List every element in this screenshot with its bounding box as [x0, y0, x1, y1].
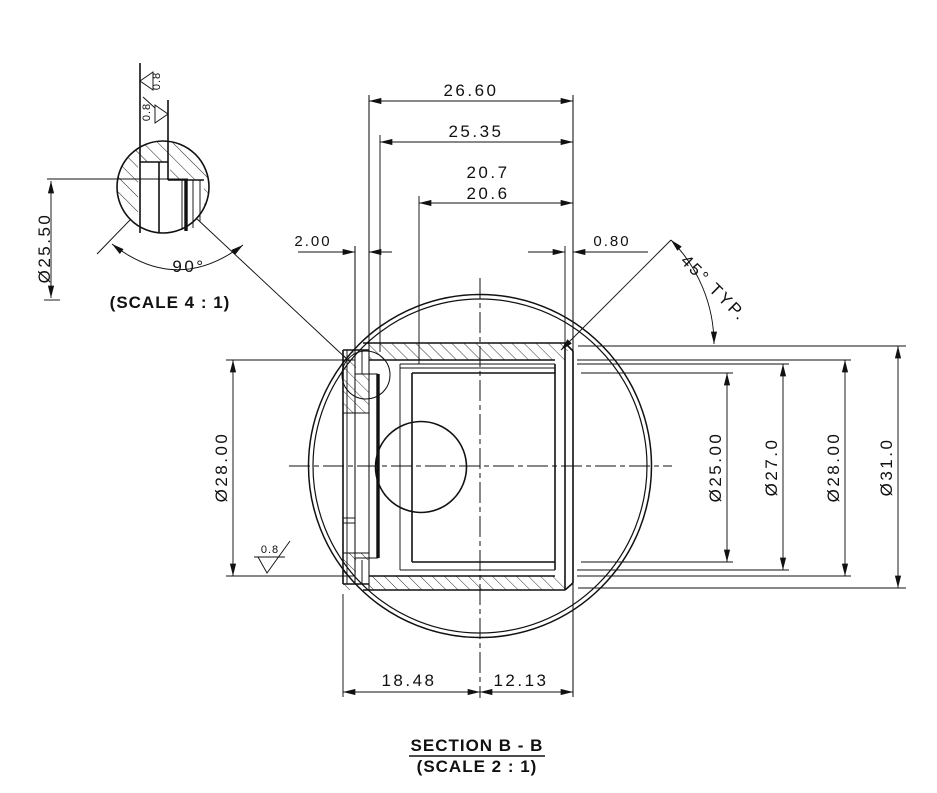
dim-chamfer-width: 0.80: [593, 233, 630, 250]
dim-dia-bore: Ø25.00: [706, 432, 725, 503]
dim-left-length: 18.48: [381, 671, 436, 690]
dim-inner-width: 25.35: [448, 122, 503, 141]
roughness-groove-left: 0.8: [151, 72, 163, 90]
dim-overall-width: 26.60: [443, 81, 498, 100]
snap-ring-groove-top: [356, 350, 369, 374]
dim-bore-depth-lower: 20.6: [466, 184, 509, 203]
dim-dia-outer: Ø31.0: [877, 438, 896, 497]
groove-diameter-dimension: Ø25.50: [35, 181, 60, 300]
detail-view: 0.8 0.8 Ø25.50 90° (SCALE 4 : 1): [35, 63, 350, 362]
surface-finish-icon: 0.8: [140, 72, 163, 90]
dim-dia-counterbore: Ø27.0: [762, 438, 781, 497]
dim-groove-angle: 90°: [172, 257, 205, 276]
engineering-drawing-sheet: 26.60 25.35 20.7 20.6 2.00 0.80 45° TYP.…: [0, 0, 937, 793]
left-diameter-dimension: Ø28.00 0.8: [212, 360, 355, 576]
detail-scale-label: (SCALE 4 : 1): [110, 293, 231, 312]
roughness-groove-right: 0.8: [141, 103, 153, 121]
section-title: SECTION B - B: [411, 736, 544, 755]
dim-rim-width: 2.00: [294, 233, 331, 250]
right-diameter-dimensions: Ø25.00 Ø27.0 Ø28.00 Ø31.0: [577, 346, 906, 588]
top-dimensions: 26.60 25.35 20.7 20.6 2.00 0.80: [294, 81, 648, 252]
surface-finish-icon: 0.8: [254, 541, 290, 573]
dim-dia-groove: Ø25.50: [35, 213, 54, 284]
ball-window-circle: [376, 422, 467, 513]
section-drawing-canvas: 26.60 25.35 20.7 20.6 2.00 0.80 45° TYP.…: [0, 0, 937, 793]
dim-chamfer-angle: 45° TYP.: [677, 251, 751, 325]
surface-finish-icon: 0.8: [141, 97, 168, 123]
view-title: SECTION B - B (SCALE 2 : 1): [409, 736, 545, 776]
dim-dia-rim: Ø28.00: [212, 432, 231, 503]
dim-dia-step: Ø28.00: [824, 432, 843, 503]
dim-bore-depth-upper: 20.7: [466, 163, 509, 182]
bottom-dimensions: 18.48 12.13: [343, 594, 573, 697]
roughness-bottom-face: 0.8: [261, 544, 279, 556]
section-scale-label: (SCALE 2 : 1): [417, 757, 538, 776]
dim-right-length: 12.13: [493, 671, 548, 690]
